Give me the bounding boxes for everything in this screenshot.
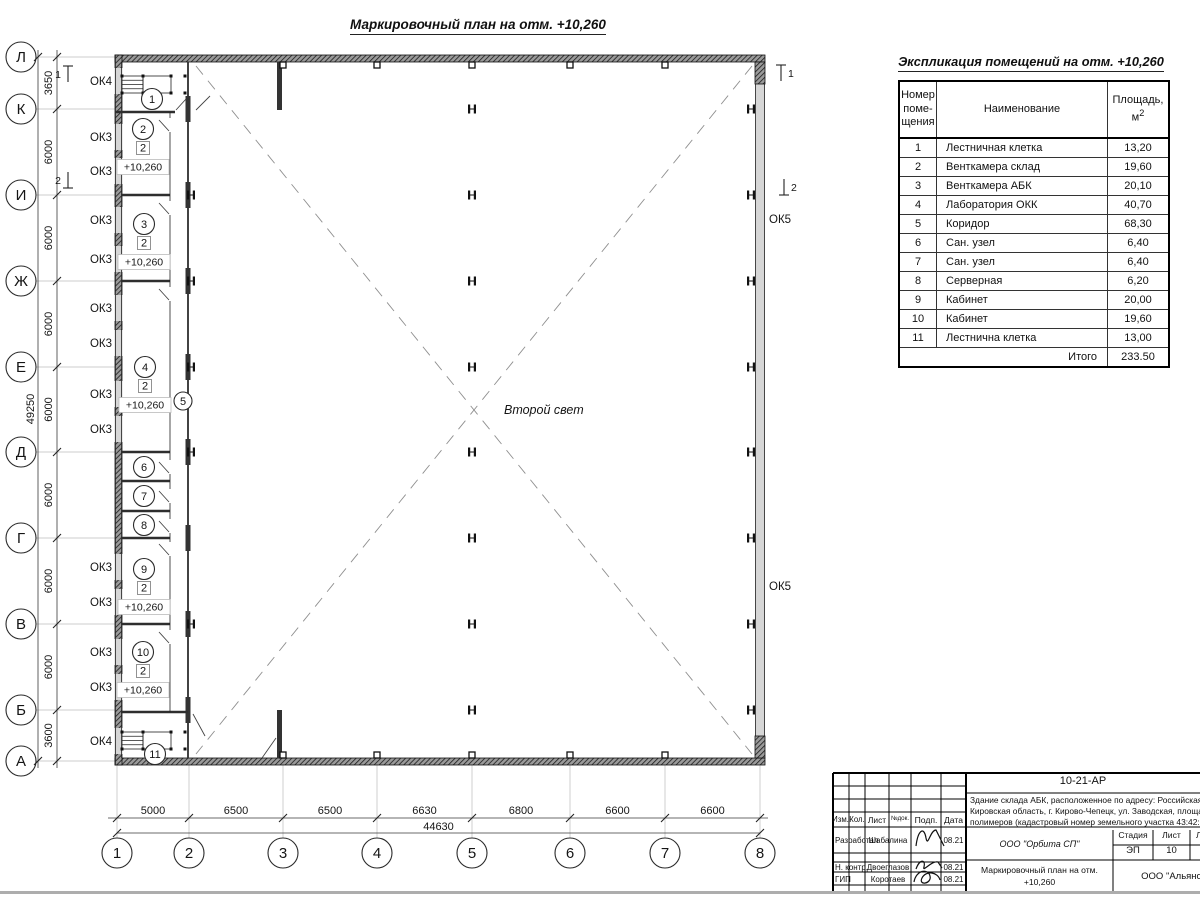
axis-row-label: Е — [16, 359, 26, 376]
schedule-row: 6Сан. узел6,40 — [899, 234, 1169, 253]
steel-column — [468, 105, 470, 114]
door-leaf — [159, 120, 169, 131]
room-number-cell: 11 — [899, 329, 937, 348]
steel-column — [753, 706, 755, 715]
room-area-cell: 68,30 — [1108, 215, 1170, 234]
dim-value: 6000 — [43, 569, 55, 593]
steel-column — [187, 448, 189, 457]
room-area-cell: 19,60 — [1108, 310, 1170, 329]
steel-column — [468, 534, 470, 543]
dim-value: 6800 — [509, 805, 533, 817]
steel-column — [193, 277, 195, 286]
axis-col-label: 2 — [185, 845, 193, 862]
room-area-cell: 13,20 — [1108, 138, 1170, 158]
axis-row-label: В — [16, 616, 26, 633]
room-name-cell: Венткамера АБК — [937, 177, 1108, 196]
type-mark: 2 — [142, 381, 148, 393]
axis-row-label: Л — [16, 49, 26, 66]
room-number: 3 — [141, 219, 147, 231]
section-number: 2 — [55, 175, 61, 187]
door-leaf — [193, 714, 205, 736]
room-number-cell: 10 — [899, 310, 937, 329]
steel-column — [474, 363, 476, 372]
post-dot — [142, 75, 145, 78]
schedule-total-label: Итого — [899, 348, 1108, 368]
room-number: 8 — [141, 520, 147, 532]
plan-symbols: Второй свет — [187, 62, 755, 758]
window-tag: ОК5 — [769, 581, 791, 593]
steel-column — [187, 620, 189, 629]
door-leaf — [159, 491, 169, 502]
steel-column — [468, 277, 470, 286]
schedule-row: 2Венткамера склад19,60 — [899, 158, 1169, 177]
window-tag: ОК3 — [90, 424, 112, 436]
post-dot — [142, 748, 145, 751]
elevation-value: +10,260 — [124, 685, 162, 697]
room-number-cell: 5 — [899, 215, 937, 234]
room-name-cell: Лестнична клетка — [937, 329, 1108, 348]
axis-col-label: 6 — [566, 845, 574, 862]
post-dot — [170, 748, 173, 751]
door-leaf — [159, 632, 169, 643]
post-dot — [170, 731, 173, 734]
section-number: 1 — [788, 68, 794, 80]
door-leaf — [159, 521, 169, 532]
window-tag: ОК4 — [90, 736, 113, 748]
dim-value: 6500 — [224, 805, 248, 817]
window-tag: ОК3 — [90, 132, 112, 144]
section-number: 2 — [791, 182, 797, 194]
room-number: 2 — [140, 124, 146, 136]
steel-column — [474, 191, 476, 200]
room-number-cell: 2 — [899, 158, 937, 177]
wall-pier — [186, 525, 191, 551]
steel-column — [474, 448, 476, 457]
axis-row-label: Ж — [14, 273, 28, 290]
room-area-cell: 6,40 — [1108, 253, 1170, 272]
room-number-cell: 7 — [899, 253, 937, 272]
axis-col-label: 7 — [661, 845, 669, 862]
window-tag: ОК3 — [90, 215, 112, 227]
room-number-cell: 9 — [899, 291, 937, 310]
steel-column — [753, 448, 755, 457]
wall-pier — [186, 697, 191, 723]
steel-column — [747, 277, 749, 286]
axis-col-label: 4 — [373, 845, 381, 862]
bottom-wall — [115, 758, 765, 765]
axis-row-label: Г — [17, 530, 25, 547]
partition-stub — [277, 62, 282, 110]
room-number: 5 — [180, 396, 186, 408]
steel-column — [468, 363, 470, 372]
steel-column — [747, 534, 749, 543]
axis-col-label: 8 — [756, 845, 764, 862]
room-number-cell: 8 — [899, 272, 937, 291]
post-dot — [121, 731, 124, 734]
drawing-sheet: Маркировочный план на отм. +10,260 ЛКИЖЕ… — [0, 0, 1200, 900]
elevation-value: +10,260 — [126, 400, 164, 412]
window-tag: ОК3 — [90, 682, 112, 694]
column-mark — [469, 62, 475, 68]
dim-value: 3600 — [43, 723, 55, 747]
schedule-header-name: Наименование — [937, 81, 1108, 138]
axis-row-label: К — [17, 101, 26, 118]
steel-column — [747, 191, 749, 200]
room-name-cell: Лаборатория ОКК — [937, 196, 1108, 215]
schedule-row: 8Серверная6,20 — [899, 272, 1169, 291]
post-dot — [184, 75, 187, 78]
room-name-cell: Сан. узел — [937, 253, 1108, 272]
post-dot — [121, 748, 124, 751]
door-leaf — [159, 289, 169, 300]
type-mark: 2 — [141, 583, 147, 595]
signature-curve — [916, 861, 942, 869]
axis-row-label: Д — [16, 444, 26, 461]
right-wall-bottom — [755, 736, 765, 758]
schedule-header-area: Площадь, м2 — [1108, 81, 1170, 138]
column-mark — [469, 752, 475, 758]
dim-value: 6000 — [43, 483, 55, 507]
wall-pier — [186, 96, 191, 122]
steel-column — [753, 534, 755, 543]
schedule-row: 4Лаборатория ОКК40,70 — [899, 196, 1169, 215]
dim-value: 6000 — [43, 226, 55, 250]
steel-column — [187, 277, 189, 286]
schedule-row: 3Венткамера АБК20,10 — [899, 177, 1169, 196]
steel-column — [753, 191, 755, 200]
window-tag: ОК3 — [90, 647, 112, 659]
room-area-cell: 6,20 — [1108, 272, 1170, 291]
room-number: 1 — [149, 94, 155, 106]
window-tag: ОК3 — [90, 254, 112, 266]
window-tag: ОК3 — [90, 166, 112, 178]
column-mark — [280, 752, 286, 758]
post-dot — [184, 92, 187, 95]
post-dot — [121, 92, 124, 95]
room-number-cell: 3 — [899, 177, 937, 196]
column-mark — [662, 62, 668, 68]
room-number: 4 — [142, 362, 148, 374]
column-mark — [662, 752, 668, 758]
room-number-cell: 6 — [899, 234, 937, 253]
steel-column — [468, 620, 470, 629]
steel-column — [747, 448, 749, 457]
axis-col-label: 1 — [113, 845, 121, 862]
steel-column — [193, 363, 195, 372]
room-area-cell: 20,10 — [1108, 177, 1170, 196]
column-mark — [567, 62, 573, 68]
steel-column — [468, 706, 470, 715]
axis-row-label: Б — [16, 702, 26, 719]
door-leaf — [159, 203, 169, 214]
signature-curve — [916, 830, 944, 846]
steel-column — [468, 191, 470, 200]
column-mark — [567, 752, 573, 758]
room-name-cell: Кабинет — [937, 310, 1108, 329]
type-mark: 2 — [140, 666, 146, 678]
signature-curve — [914, 871, 940, 883]
room-number: 9 — [141, 564, 147, 576]
dim-value: 6600 — [605, 805, 629, 817]
room-area-cell: 40,70 — [1108, 196, 1170, 215]
schedule-row: 7Сан. узел6,40 — [899, 253, 1169, 272]
room-name-cell: Кабинет — [937, 291, 1108, 310]
sheet-frame-line — [0, 891, 1200, 894]
schedule-row: 9Кабинет20,00 — [899, 291, 1169, 310]
schedule-row: 11Лестнична клетка13,00 — [899, 329, 1169, 348]
schedule-row: 10Кабинет19,60 — [899, 310, 1169, 329]
window-tag: ОК3 — [90, 562, 112, 574]
axis-row-label: А — [16, 753, 26, 770]
top-wall — [115, 55, 765, 62]
room-number: 6 — [141, 462, 147, 474]
walls — [115, 55, 766, 765]
dim-total-value: 49250 — [25, 394, 37, 425]
door-leaf — [159, 462, 169, 473]
door-leaf — [176, 99, 186, 110]
window-tag: ОК5 — [769, 214, 791, 226]
right-wall-top — [755, 62, 765, 84]
schedule-row: 5Коридор68,30 — [899, 215, 1169, 234]
elevation-value: +10,260 — [124, 162, 162, 174]
window-tag: ОК3 — [90, 389, 112, 401]
window-tag: ОК4 — [90, 76, 113, 88]
axis-row-label: И — [16, 187, 27, 204]
window-tag: ОК3 — [90, 597, 112, 609]
dim-value: 6000 — [43, 397, 55, 421]
post-dot — [170, 92, 173, 95]
door-leaf — [262, 738, 276, 758]
steel-column — [193, 191, 195, 200]
room-number: 7 — [141, 491, 147, 503]
steel-column — [747, 620, 749, 629]
schedule-title: Экспликация помещений на отм. +10,260 — [898, 54, 1164, 69]
room-name-cell: Сан. узел — [937, 234, 1108, 253]
floor-plan-drawing: ЛКИЖЕДГВБА12345678 365060006000600060006… — [0, 0, 830, 900]
room-area-cell: 6,40 — [1108, 234, 1170, 253]
door-leaf — [196, 96, 210, 110]
schedule-total-row: Итого 233.50 — [899, 348, 1169, 368]
room-name-cell: Лестничная клетка — [937, 138, 1108, 158]
dim-value: 6000 — [43, 655, 55, 679]
second-light-label: Второй свет — [504, 403, 584, 417]
room-schedule: Экспликация помещений на отм. +10,260 Но… — [898, 54, 1164, 368]
axis-col-label: 3 — [279, 845, 287, 862]
type-mark: 2 — [141, 238, 147, 250]
plan-labels: ОК4ОК3ОК3ОК3ОК3ОК3ОК3ОК3ОК3ОК3ОК3ОК3ОК3О… — [55, 65, 797, 765]
post-dot — [142, 731, 145, 734]
room-area-cell: 19,60 — [1108, 158, 1170, 177]
steel-column — [747, 363, 749, 372]
steel-column — [474, 105, 476, 114]
steel-column — [753, 620, 755, 629]
dim-value: 6500 — [318, 805, 342, 817]
steel-column — [747, 105, 749, 114]
post-dot — [184, 748, 187, 751]
steel-column — [193, 448, 195, 457]
steel-column — [753, 277, 755, 286]
axis-col-label: 5 — [468, 845, 476, 862]
steel-column — [753, 363, 755, 372]
room-area-cell: 13,00 — [1108, 329, 1170, 348]
schedule-row: 1Лестничная клетка13,20 — [899, 138, 1169, 158]
steel-column — [193, 620, 195, 629]
column-mark — [374, 62, 380, 68]
room-number-cell: 1 — [899, 138, 937, 158]
partition-stub — [277, 710, 282, 758]
column-mark — [280, 62, 286, 68]
room-name-cell: Серверная — [937, 272, 1108, 291]
dim-value: 6630 — [412, 805, 436, 817]
room-name-cell: Венткамера склад — [937, 158, 1108, 177]
door-leaf — [159, 544, 169, 555]
column-mark — [374, 752, 380, 758]
steel-column — [468, 448, 470, 457]
title-block: 10-21-АР Здание склада АБК, расположенно… — [832, 772, 1200, 893]
post-dot — [184, 731, 187, 734]
dim-total-value: 44630 — [423, 821, 454, 833]
schedule-header-number: Номер поме- щения — [899, 81, 937, 138]
schedule-table: Номер поме- щения Наименование Площадь, … — [898, 80, 1170, 368]
elevation-value: +10,260 — [125, 602, 163, 614]
type-mark: 2 — [140, 143, 146, 155]
steel-column — [747, 706, 749, 715]
steel-column — [474, 620, 476, 629]
steel-column — [187, 363, 189, 372]
steel-column — [474, 277, 476, 286]
steel-column — [474, 706, 476, 715]
elevation-value: +10,260 — [125, 257, 163, 269]
steel-column — [187, 191, 189, 200]
room-number-cell: 4 — [899, 196, 937, 215]
post-dot — [121, 75, 124, 78]
window-tag: ОК3 — [90, 338, 112, 350]
dim-value: 6000 — [43, 140, 55, 164]
steel-column — [753, 105, 755, 114]
dim-value: 3650 — [43, 71, 55, 95]
post-dot — [170, 75, 173, 78]
room-area-cell: 20,00 — [1108, 291, 1170, 310]
room-number: 10 — [137, 647, 149, 659]
section-number: 1 — [55, 69, 61, 81]
dim-value: 5000 — [141, 805, 165, 817]
right-window-band — [755, 62, 765, 758]
dim-value: 6000 — [43, 312, 55, 336]
signatures — [832, 772, 1200, 893]
room-number: 11 — [149, 749, 160, 761]
dim-value: 6600 — [700, 805, 724, 817]
room-name-cell: Коридор — [937, 215, 1108, 234]
schedule-title-text: Экспликация помещений на отм. +10,260 — [898, 54, 1164, 72]
window-tag: ОК3 — [90, 303, 112, 315]
schedule-total-value: 233.50 — [1108, 348, 1170, 368]
steel-column — [474, 534, 476, 543]
